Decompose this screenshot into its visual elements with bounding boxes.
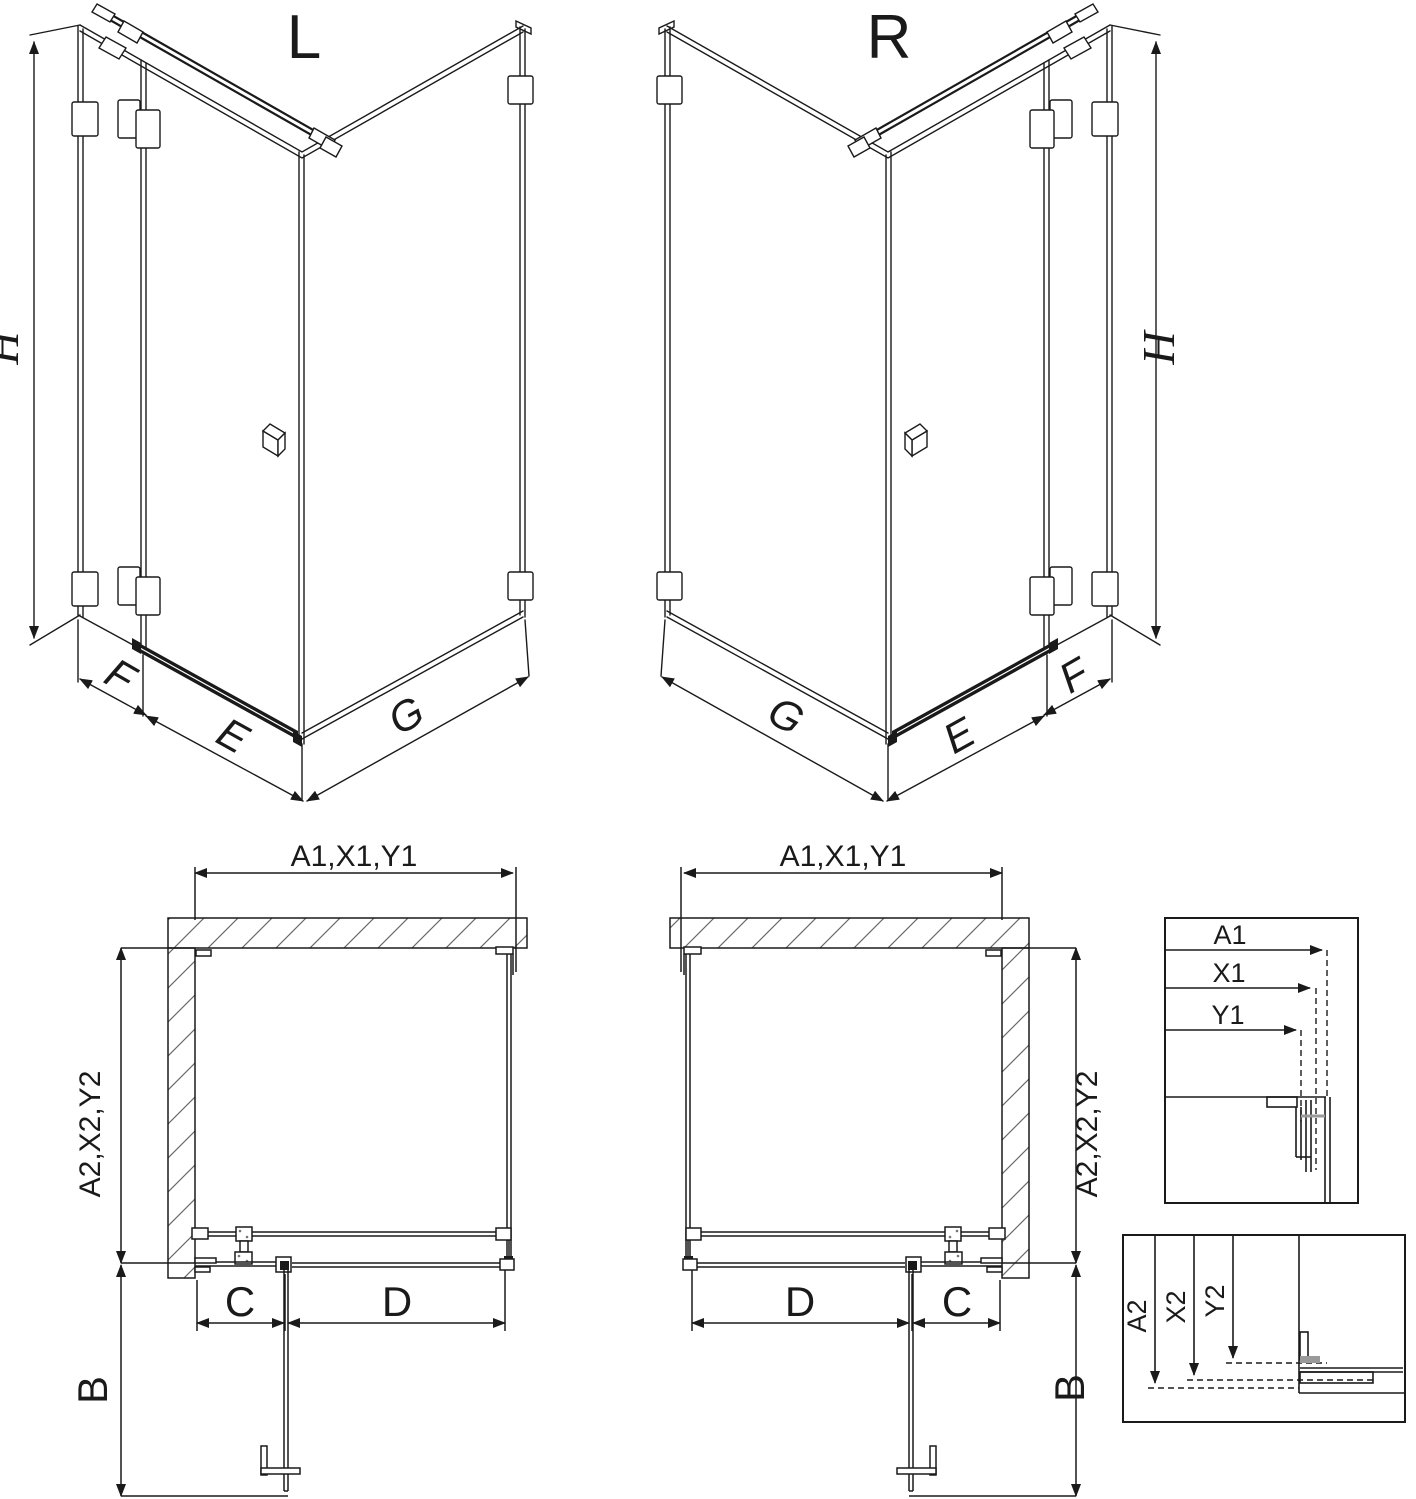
variant-label-right: R: [867, 3, 912, 72]
fixed-panel-label-right: F: [1051, 648, 1099, 703]
detail-depth-label-y2: Y2: [1200, 1284, 1230, 1317]
detail-width-label-y1: Y1: [1211, 1000, 1244, 1030]
detail-depth-profile: [1300, 1332, 1403, 1383]
wall-hatch-top-left-plan: [168, 918, 527, 948]
wall-hatch-side-left-plan: [168, 948, 195, 1278]
detail-depth-label-x2: X2: [1161, 1290, 1191, 1323]
plan-depth-label-right: A2,X2,Y2: [1071, 1071, 1104, 1198]
plan-fixed-segment-label-right: C: [942, 1278, 972, 1325]
wall-hatch-top-right-plan: [670, 918, 1029, 948]
plan-left-walls: [168, 918, 527, 1278]
height-label-left: H: [0, 329, 28, 366]
plan-door-segment-label-left: D: [382, 1278, 412, 1325]
side-panel-label-right: G: [760, 687, 811, 744]
height-label-right: H: [1133, 329, 1184, 366]
plan-wall-profile: [196, 950, 211, 956]
plan-stabilizer-bar: [192, 1227, 513, 1266]
detail-depth-label-a2: A2: [1122, 1299, 1152, 1332]
door-handle-knob: [263, 424, 285, 456]
detail-width-label-a1: A1: [1213, 920, 1246, 950]
wall-hatch-side-right-plan: [1002, 948, 1029, 1278]
plan-open-door: [261, 1262, 300, 1491]
variant-label-left: L: [287, 3, 321, 72]
detail-depth-dashed-refs: [1148, 1363, 1373, 1388]
plan-right-walls: [670, 918, 1029, 1278]
door-label-right: E: [935, 707, 983, 762]
fixed-panel-label-left: F: [97, 649, 145, 704]
plan-depth-label-left: A2,X2,Y2: [74, 1071, 107, 1198]
plan-swing-label-right: B: [1046, 1374, 1093, 1402]
plan-width-label-left: A1,X1,Y1: [291, 840, 418, 873]
door-bottom-rail: [132, 638, 302, 747]
door-hinges: [118, 100, 160, 615]
detail-depth: [1123, 1235, 1405, 1422]
detail-width-profile: [1267, 1097, 1330, 1203]
plan-fixed-segment-label-left: C: [225, 1278, 255, 1325]
plan-swing-label-left: B: [69, 1376, 116, 1404]
plan-door-segment-label-right: D: [785, 1278, 815, 1325]
detail-width-dashed-refs: [1301, 950, 1327, 1170]
detail-width-label-x1: X1: [1212, 958, 1245, 988]
detail-width: [1165, 918, 1358, 1203]
technical-drawing-canvas: L R H H F E G F E G: [0, 0, 1416, 1499]
plan-width-label-right: A1,X1,Y1: [780, 840, 907, 873]
